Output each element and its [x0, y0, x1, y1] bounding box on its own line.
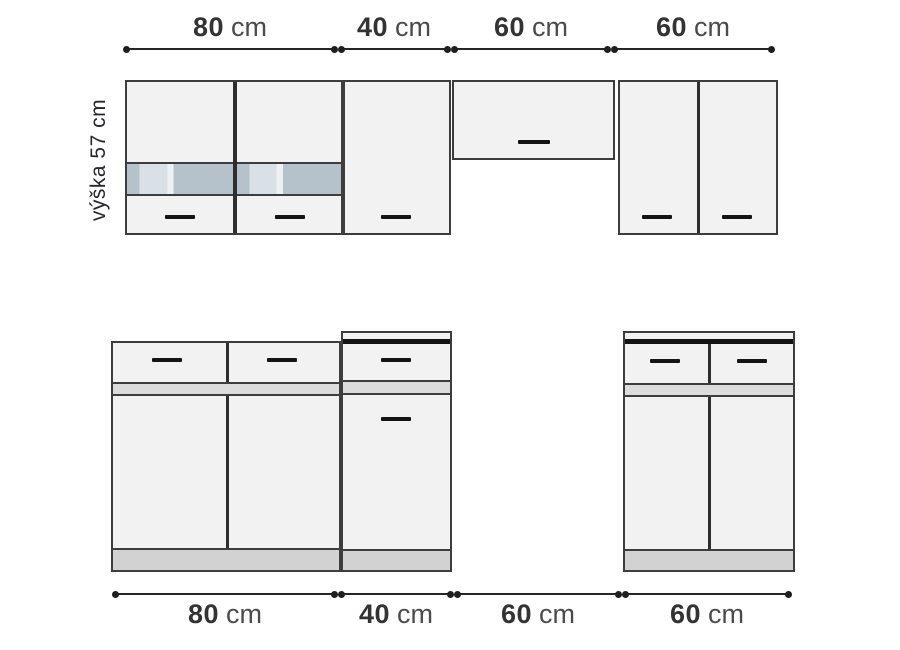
dim-unit: cm	[694, 12, 730, 42]
glass-strip-left-door	[127, 162, 233, 196]
top-dim-line-60b	[613, 48, 773, 50]
countertop-band	[625, 383, 793, 397]
bottom-dim-label-80: 80cm	[188, 599, 262, 629]
countertop-band	[113, 382, 339, 396]
dim-value: 40	[357, 12, 388, 42]
top-dim-line-40	[340, 48, 449, 50]
door-divider	[697, 82, 700, 233]
drawer-divider	[708, 344, 711, 383]
dim-value: 60	[656, 12, 687, 42]
door-divider	[708, 397, 711, 549]
top-dim-label-80: 80cm	[193, 12, 267, 42]
top-dim-label-40: 40cm	[357, 12, 431, 42]
bottom-dim-label-60a: 60cm	[501, 599, 575, 629]
drawer-handle	[650, 359, 680, 363]
door-handle	[275, 215, 305, 219]
bottom-dim-label-60b: 60cm	[670, 599, 744, 629]
door-divider	[226, 396, 229, 549]
base-cabinet-40	[341, 331, 452, 572]
base-cabinet-80	[111, 341, 341, 572]
worktop-edge	[343, 339, 450, 344]
drawer-handle	[737, 359, 767, 363]
dim-unit: cm	[231, 12, 267, 42]
top-dim-line-80	[125, 48, 336, 50]
plinth	[625, 549, 793, 570]
door-handle	[642, 215, 672, 219]
door-handle	[722, 215, 752, 219]
dim-unit: cm	[395, 12, 431, 42]
door-handle	[381, 215, 411, 219]
dim-unit: cm	[397, 599, 433, 629]
top-dim-line-60a	[453, 48, 609, 50]
drawer-divider	[226, 343, 229, 382]
bottom-dim-line-60b	[624, 593, 790, 595]
dim-value: 80	[193, 12, 224, 42]
dim-unit: cm	[226, 599, 262, 629]
dim-unit: cm	[532, 12, 568, 42]
countertop-band	[343, 380, 450, 395]
dim-value: 60	[670, 599, 701, 629]
dim-value: 80	[188, 599, 219, 629]
wall-cabinet-60	[618, 80, 778, 235]
bottom-dim-line-60a	[456, 593, 620, 595]
glass-strip-right-door	[237, 162, 341, 196]
drawer-handle	[381, 358, 411, 362]
wall-cabinet-80	[125, 80, 343, 235]
bottom-dim-line-80	[114, 593, 336, 595]
dim-value: 60	[494, 12, 525, 42]
base-cabinet-60	[623, 331, 795, 572]
door-divider	[233, 82, 237, 233]
plinth	[113, 548, 339, 570]
kitchen-plan-diagram: 80cm 40cm 60cm 60cm výška 57 cm	[0, 0, 900, 650]
wall-cabinet-40	[343, 80, 451, 235]
dim-value: 60	[501, 599, 532, 629]
drawer-handle	[267, 358, 297, 362]
wall-cabinet-60-short	[452, 80, 615, 160]
dim-value: 40	[359, 599, 390, 629]
top-dim-label-60b: 60cm	[656, 12, 730, 42]
top-dim-label-60a: 60cm	[494, 12, 568, 42]
drawer-handle	[152, 358, 182, 362]
dim-unit: cm	[708, 599, 744, 629]
dim-unit: cm	[539, 599, 575, 629]
door-handle	[518, 140, 550, 144]
door-handle	[165, 215, 195, 219]
bottom-dim-line-40	[340, 593, 452, 595]
bottom-dim-label-40: 40cm	[359, 599, 433, 629]
height-label: výška 57 cm	[79, 60, 119, 260]
door-handle	[381, 417, 411, 421]
plinth	[343, 549, 450, 570]
